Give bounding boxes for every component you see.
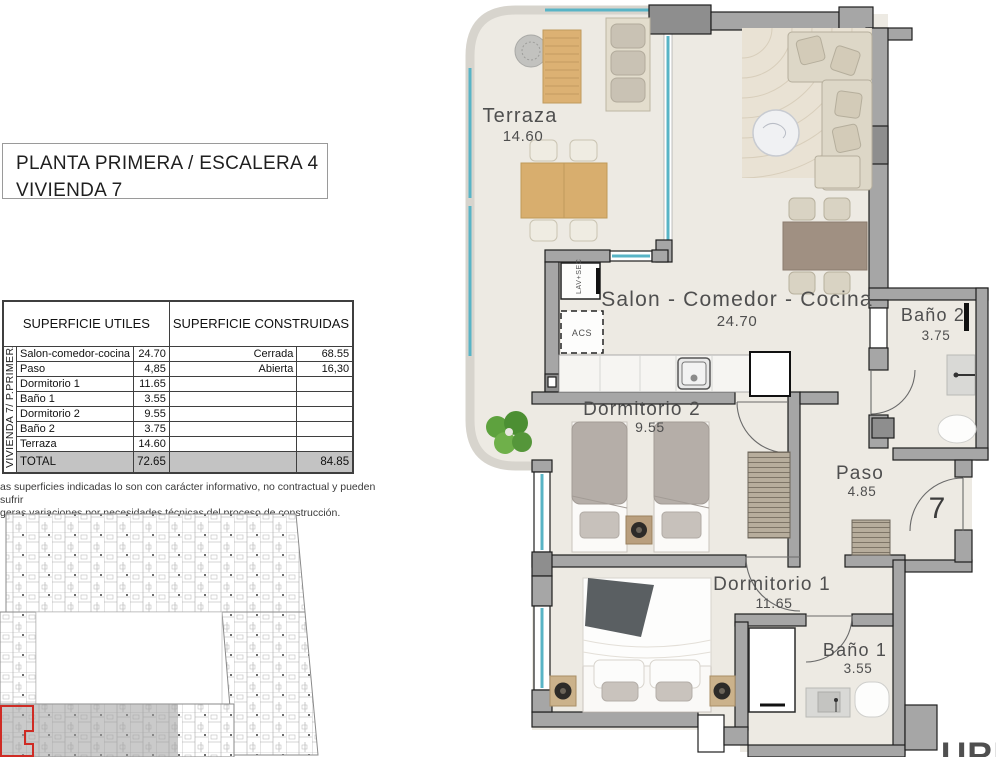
kitchen-appliance: [750, 352, 790, 396]
nightstand-left: [550, 676, 576, 706]
room-area-bano1: 3.55: [844, 661, 873, 676]
room-label-salon: Salon - Comedor - Cocina: [601, 288, 873, 311]
kitchen-counter: [559, 355, 750, 392]
room-label-dormitorio2: Dormitorio 2: [583, 399, 701, 420]
bathroom1-toilet: [855, 682, 889, 717]
room-area-terraza: 14.60: [503, 128, 544, 145]
row-value: 9.55: [134, 407, 170, 422]
row-name: Terraza: [17, 437, 134, 452]
row-name: Salon-comedor-cocina: [17, 347, 134, 362]
row-right-name: Abierta: [169, 362, 297, 377]
site-building-outline: [0, 514, 318, 757]
terrace-plant-pot: [515, 35, 547, 67]
coffee-table: [753, 110, 799, 156]
header-superficie-construidas: SUPERFICIE CONSTRUIDAS: [169, 301, 353, 347]
double-bed: [583, 578, 711, 712]
row-name: Baño 1: [17, 392, 134, 407]
lav-sec-label: LAV+SEC: [576, 259, 583, 294]
plan-title-line2: VIVIENDA 7: [16, 178, 327, 205]
room-area-dormitorio1: 11.65: [756, 595, 793, 611]
kitchen-sink: [678, 358, 710, 389]
shower: [749, 628, 795, 712]
header-superficie-utiles: SUPERFICIE UTILES: [3, 301, 169, 347]
surface-table: SUPERFICIE UTILES SUPERFICIE CONSTRUIDAS…: [2, 300, 354, 474]
hallway-closet: [852, 520, 890, 555]
room-area-dormitorio2: 9.55: [635, 419, 665, 435]
single-bed-1: [572, 422, 627, 552]
bathroom2-sink: [947, 355, 975, 395]
plan-title-line1: PLANTA PRIMERA / ESCALERA 4: [16, 151, 327, 178]
total-label: TOTAL: [17, 452, 134, 474]
row-right-value: 16,30: [297, 362, 353, 377]
bathroom2-toilet: [938, 415, 976, 443]
acs-closet: ACS: [561, 311, 603, 353]
row-right-name: Cerrada: [169, 347, 297, 362]
bathroom1-sink: [806, 688, 850, 717]
wardrobe: [748, 452, 790, 538]
total-value: 72.65: [134, 452, 170, 474]
unit-number: 7: [929, 492, 946, 525]
row-name: Baño 2: [17, 422, 134, 437]
floorplan-sheet: PLANTA PRIMERA / ESCALERA 4 VIVIENDA 7 S…: [0, 0, 996, 757]
row-name: Paso: [17, 362, 134, 377]
laundry-closet: LAV+SEC: [561, 259, 600, 299]
row-right-value: 68.55: [297, 347, 353, 362]
site-key-plan: [0, 512, 330, 757]
terrace-salon-glass-wall: [664, 33, 672, 245]
room-label-bano2: Baño 2: [901, 305, 965, 325]
sun-lounger: [543, 30, 581, 103]
row-value: 3.55: [134, 392, 170, 407]
terrace-bench: [606, 18, 650, 111]
floor-plan: LAV+SEC ACS: [455, 0, 996, 757]
row-name: Dormitorio 2: [17, 407, 134, 422]
plan-title-box: PLANTA PRIMERA / ESCALERA 4 VIVIENDA 7: [2, 143, 328, 199]
room-label-terraza: Terraza: [482, 105, 557, 127]
nightstand-right: [710, 676, 735, 706]
row-name: Dormitorio 1: [17, 377, 134, 392]
room-label-dormitorio1: Dormitorio 1: [713, 574, 831, 595]
room-label-bano1: Baño 1: [823, 640, 887, 660]
total-right-value: 84.85: [297, 452, 353, 474]
row-value: 3.75: [134, 422, 170, 437]
disclaimer-line1: as superficies indicadas lo son con cará…: [0, 481, 380, 507]
table-side-label: VIVIENDA 7/ P.PRIMERA: [3, 347, 17, 474]
builder-logo-partial: URN: [941, 736, 996, 757]
acs-label: ACS: [572, 328, 592, 338]
row-value: 14.60: [134, 437, 170, 452]
room-area-paso: 4.85: [848, 484, 877, 499]
nightstand: [626, 516, 652, 544]
room-area-salon: 24.70: [717, 313, 758, 330]
room-label-paso: Paso: [836, 463, 884, 484]
single-bed-2: [654, 422, 709, 552]
row-value: 11.65: [134, 377, 170, 392]
room-area-bano2: 3.75: [922, 328, 951, 343]
row-value: 24.70: [134, 347, 170, 362]
row-value: 4,85: [134, 362, 170, 377]
